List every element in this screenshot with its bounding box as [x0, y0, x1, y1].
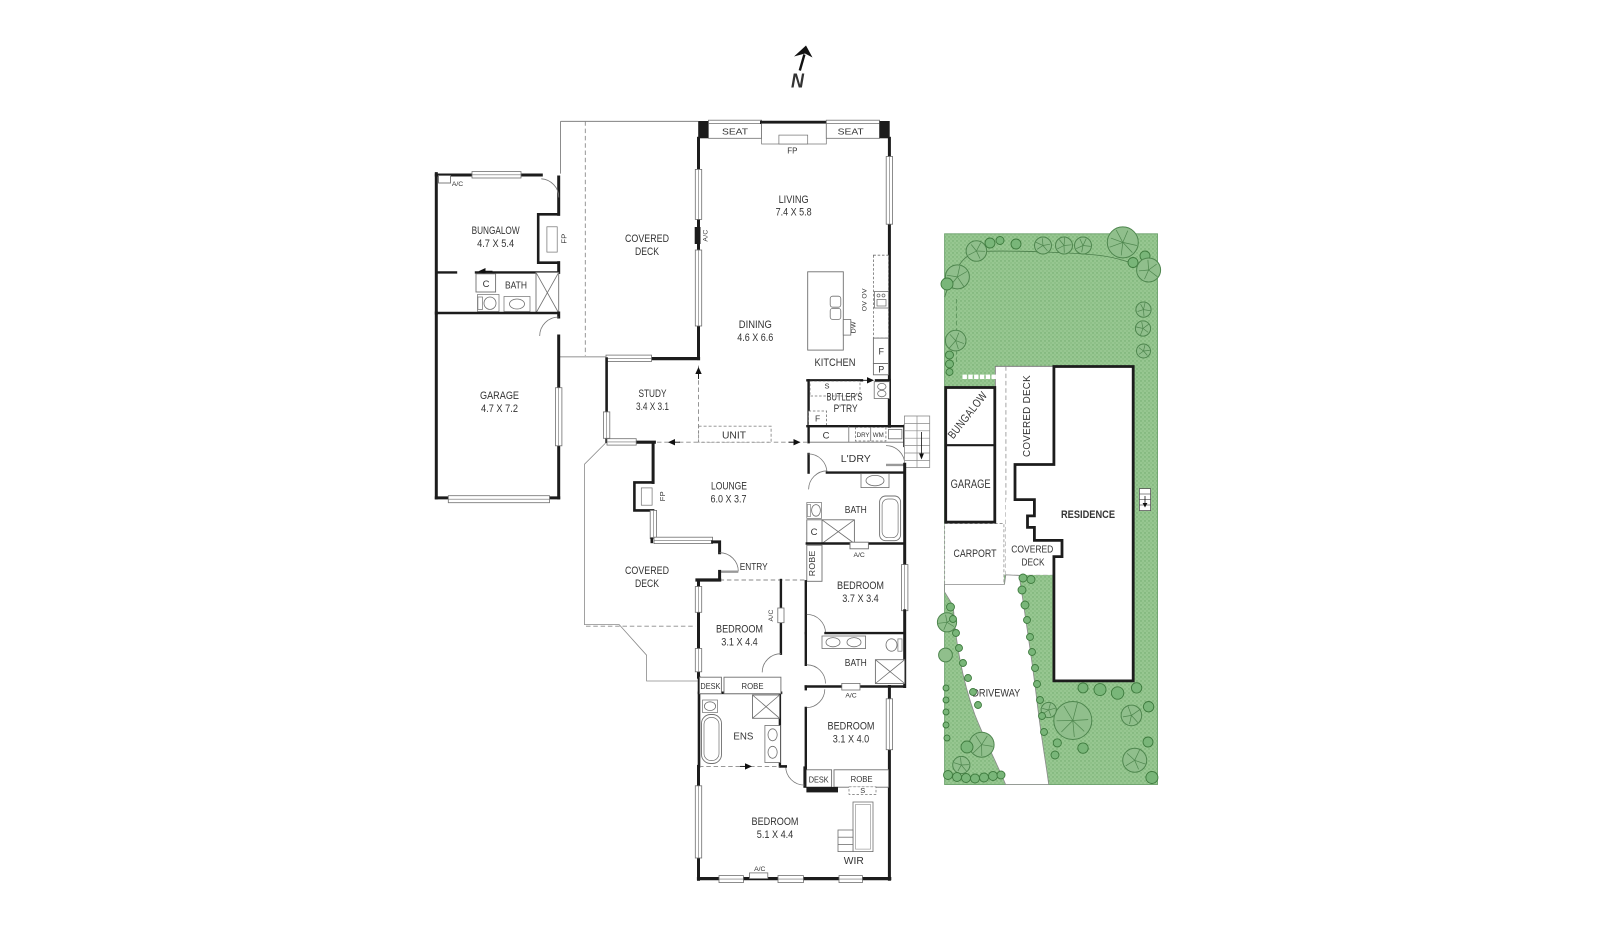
- svg-text:F: F: [879, 346, 885, 356]
- svg-text:C: C: [483, 279, 490, 290]
- svg-text:COVERED: COVERED: [1011, 544, 1053, 556]
- svg-text:BATH: BATH: [845, 504, 867, 516]
- svg-text:3.1 X 4.4: 3.1 X 4.4: [721, 637, 758, 649]
- svg-text:FP: FP: [787, 147, 797, 156]
- svg-text:S: S: [824, 382, 829, 391]
- svg-text:C: C: [823, 431, 830, 442]
- svg-text:COVERED DECK: COVERED DECK: [1021, 375, 1033, 457]
- svg-text:6.0 X 3.7: 6.0 X 3.7: [711, 494, 747, 506]
- svg-text:DESK: DESK: [700, 681, 720, 691]
- svg-text:DECK: DECK: [1022, 557, 1045, 569]
- svg-text:BEDROOM: BEDROOM: [828, 721, 875, 733]
- svg-text:SEAT: SEAT: [838, 126, 864, 136]
- svg-text:DRY: DRY: [857, 432, 870, 439]
- svg-text:WM: WM: [873, 432, 884, 439]
- svg-text:CARPORT: CARPORT: [954, 548, 997, 560]
- svg-text:SEAT: SEAT: [722, 126, 748, 136]
- svg-text:L'DRY: L'DRY: [841, 453, 871, 465]
- svg-text:3.4 X 3.1: 3.4 X 3.1: [636, 401, 669, 413]
- svg-text:DESK: DESK: [809, 774, 829, 784]
- svg-text:STUDY: STUDY: [639, 388, 667, 400]
- svg-text:ROBE: ROBE: [808, 550, 817, 576]
- svg-text:5.1 X 4.4: 5.1 X 4.4: [757, 829, 794, 841]
- svg-text:A/C: A/C: [452, 181, 463, 188]
- svg-text:A/C: A/C: [845, 693, 856, 700]
- svg-text:OV OV: OV OV: [862, 288, 869, 311]
- svg-text:DW: DW: [851, 321, 858, 333]
- svg-text:ROBE: ROBE: [851, 774, 873, 784]
- svg-text:4.7 X 5.4: 4.7 X 5.4: [477, 238, 514, 250]
- svg-text:A/C: A/C: [854, 552, 865, 559]
- svg-text:P: P: [878, 365, 884, 375]
- svg-text:DINING: DINING: [739, 319, 772, 331]
- svg-text:ENTRY: ENTRY: [740, 561, 768, 573]
- svg-text:COVERED: COVERED: [625, 565, 669, 577]
- svg-text:4.6 X 6.6: 4.6 X 6.6: [737, 332, 773, 344]
- svg-text:UNIT: UNIT: [722, 429, 747, 441]
- svg-text:BEDROOM: BEDROOM: [837, 580, 884, 592]
- svg-text:ROBE: ROBE: [742, 681, 764, 691]
- svg-text:GARAGE: GARAGE: [480, 390, 519, 402]
- svg-text:DRIVEWAY: DRIVEWAY: [972, 688, 1021, 700]
- svg-text:A/C: A/C: [768, 609, 775, 621]
- svg-text:FP: FP: [560, 233, 569, 243]
- svg-text:C: C: [811, 527, 818, 538]
- svg-text:3.1 X 4.0: 3.1 X 4.0: [833, 734, 870, 746]
- svg-text:7.4 X 5.8: 7.4 X 5.8: [776, 207, 812, 219]
- svg-text:A/C: A/C: [754, 866, 765, 873]
- svg-text:FP: FP: [658, 491, 667, 501]
- svg-text:S: S: [860, 786, 865, 795]
- svg-text:BEDROOM: BEDROOM: [716, 624, 763, 636]
- svg-text:BATH: BATH: [845, 657, 867, 669]
- svg-text:COVERED: COVERED: [625, 233, 669, 245]
- svg-text:N: N: [791, 71, 804, 93]
- svg-text:RESIDENCE: RESIDENCE: [1061, 509, 1115, 521]
- svg-text:DECK: DECK: [635, 246, 660, 258]
- svg-text:ENS: ENS: [733, 731, 753, 743]
- svg-text:BUTLER'S: BUTLER'S: [827, 392, 863, 404]
- svg-text:3.7 X 3.4: 3.7 X 3.4: [842, 593, 879, 605]
- svg-text:WIR: WIR: [844, 855, 864, 867]
- svg-text:DECK: DECK: [635, 578, 660, 590]
- svg-text:4.7 X 7.2: 4.7 X 7.2: [481, 403, 518, 415]
- svg-text:LIVING: LIVING: [779, 194, 809, 206]
- svg-text:KITCHEN: KITCHEN: [815, 357, 856, 369]
- svg-text:A/C: A/C: [703, 229, 710, 241]
- svg-text:LOUNGE: LOUNGE: [711, 481, 747, 493]
- svg-text:GARAGE: GARAGE: [951, 479, 991, 491]
- svg-text:F: F: [815, 414, 820, 424]
- svg-text:BUNGALOW: BUNGALOW: [472, 225, 520, 237]
- svg-text:BATH: BATH: [505, 280, 527, 292]
- svg-text:P'TRY: P'TRY: [834, 403, 859, 415]
- svg-text:BEDROOM: BEDROOM: [752, 816, 799, 828]
